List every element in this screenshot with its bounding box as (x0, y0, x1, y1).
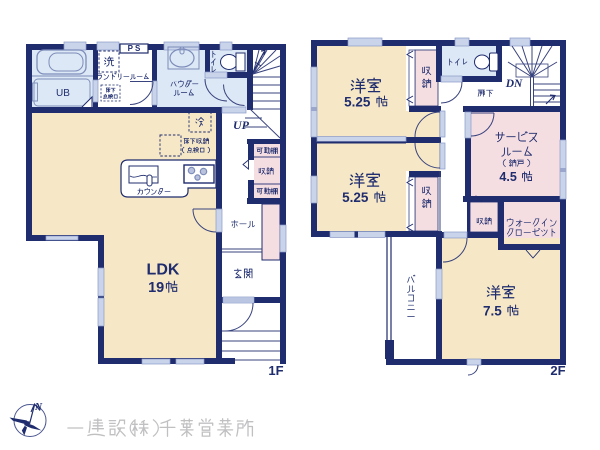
svg-text:LDK: LDK (147, 262, 180, 279)
svg-text:N: N (34, 402, 43, 413)
svg-text:P S: P S (128, 44, 141, 53)
svg-text:4.5: 4.5 (499, 170, 516, 184)
svg-text:7.5: 7.5 (483, 303, 502, 318)
svg-text:UB: UB (56, 88, 70, 99)
svg-text:19: 19 (148, 280, 164, 296)
svg-text:5.25: 5.25 (342, 190, 369, 205)
svg-text:5.25: 5.25 (344, 94, 371, 109)
svg-text:1F: 1F (268, 363, 283, 378)
svg-text:DN: DN (505, 78, 523, 90)
svg-text:2F: 2F (550, 363, 565, 378)
svg-text:UP: UP (233, 118, 250, 132)
